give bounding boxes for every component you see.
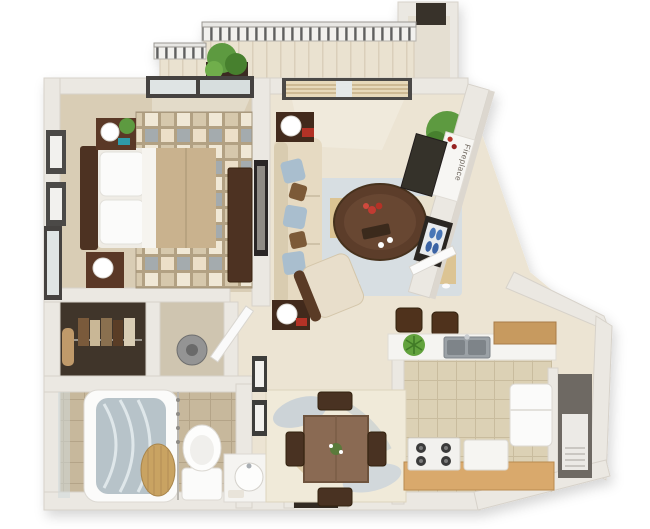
utility-closet [558, 374, 592, 478]
red-flowers [368, 206, 376, 214]
folded-sheet [142, 148, 156, 248]
faucet-icon [247, 464, 252, 469]
shower-glass [58, 392, 70, 498]
table-lamp-icon [101, 123, 119, 141]
bedroom-south-wall [44, 288, 230, 302]
brown-pillow [289, 231, 308, 250]
cup [387, 237, 393, 243]
floor-plan-screenshot: Fireplace [0, 0, 650, 529]
bunched-shower-curtain [141, 444, 175, 496]
towel [62, 328, 74, 366]
toilet-tank [182, 468, 222, 500]
bedroom-window [44, 226, 62, 300]
red-book [302, 128, 314, 137]
bar-stool [432, 312, 458, 336]
chair [318, 392, 352, 410]
end-table-top [276, 112, 314, 142]
chair [368, 432, 386, 466]
nightstand-top [96, 118, 136, 150]
towels [228, 490, 244, 498]
bar-stool [396, 308, 422, 332]
bar-plant-icon [403, 334, 425, 356]
cup [378, 242, 384, 248]
dresser [228, 168, 252, 282]
divider-wall-art [254, 160, 268, 256]
table-lamp-icon [277, 304, 297, 324]
nightstand-bottom [86, 252, 124, 288]
utility-closet [177, 335, 207, 365]
closet-divider-wall [146, 302, 160, 384]
toilet [182, 425, 222, 500]
chair [318, 488, 352, 506]
pillow [100, 200, 144, 244]
dishwasher [464, 440, 508, 470]
book [118, 138, 130, 145]
refrigerator [510, 384, 552, 446]
end-table-bottom [272, 300, 310, 330]
coffee-table [334, 184, 426, 260]
table-lamp-icon [93, 258, 113, 278]
storage-closet-doorway [416, 3, 446, 25]
pillow [100, 152, 144, 196]
red-book [296, 318, 307, 326]
blue-pillow [282, 204, 307, 229]
overhead-cabinet [494, 322, 556, 344]
table-lamp-icon [281, 116, 301, 136]
faucet-icon [464, 334, 469, 339]
dining-table [304, 416, 368, 482]
headboard [80, 146, 98, 250]
bed [80, 146, 216, 250]
water-heater [562, 414, 588, 470]
floor-plan-render: Fireplace [0, 0, 650, 529]
chair [286, 432, 304, 466]
hanging-clothes [78, 318, 135, 346]
double-sink [444, 334, 490, 358]
small-plant-icon [119, 118, 135, 134]
range [408, 438, 460, 470]
